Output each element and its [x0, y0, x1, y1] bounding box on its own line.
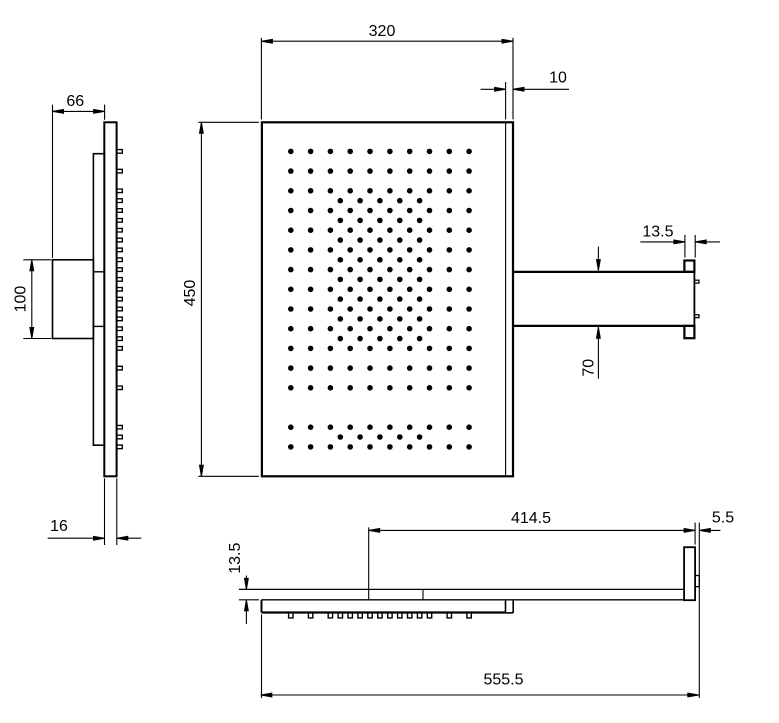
- svg-text:555.5: 555.5: [483, 672, 523, 689]
- svg-text:100: 100: [12, 286, 29, 313]
- svg-text:5.5: 5.5: [712, 510, 734, 527]
- svg-text:16: 16: [50, 518, 68, 535]
- svg-text:13.5: 13.5: [227, 543, 244, 574]
- svg-text:10: 10: [549, 70, 567, 87]
- svg-text:13.5: 13.5: [642, 223, 673, 240]
- svg-text:414.5: 414.5: [511, 510, 551, 527]
- svg-text:66: 66: [66, 93, 84, 110]
- svg-text:320: 320: [369, 23, 396, 40]
- svg-text:450: 450: [182, 280, 199, 307]
- svg-text:70: 70: [580, 359, 597, 377]
